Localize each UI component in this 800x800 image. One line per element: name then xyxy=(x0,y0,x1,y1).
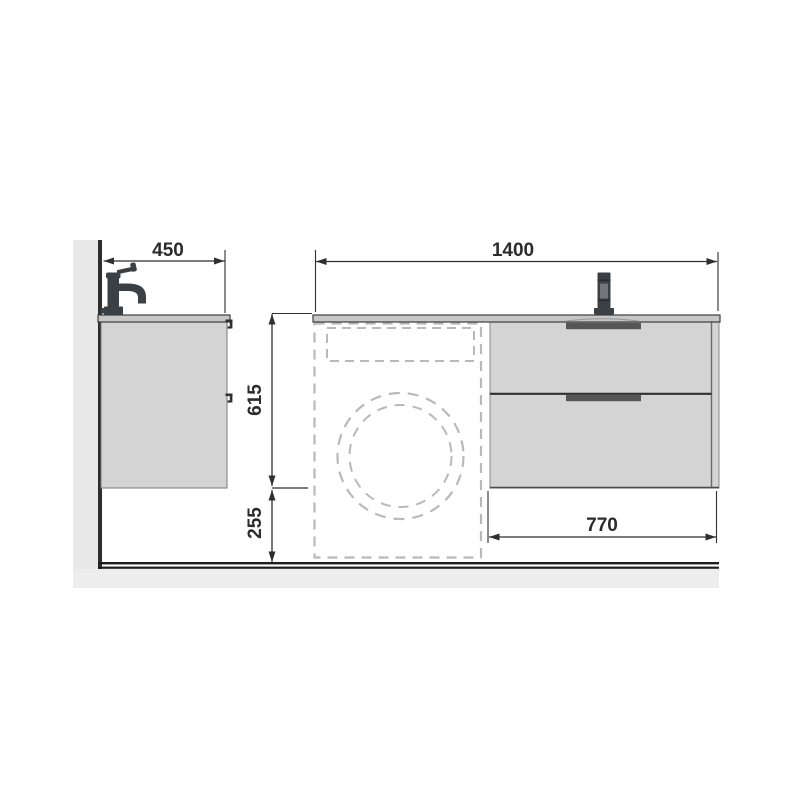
dimension-label-drawer-unit-width: 770 xyxy=(586,515,618,536)
wall-fill xyxy=(73,240,98,570)
dimension-depth: 450 xyxy=(104,240,226,313)
drawer-handle-bottom xyxy=(566,395,641,401)
floor-line-top xyxy=(98,562,719,564)
floor xyxy=(73,562,719,588)
arrowhead-up xyxy=(269,490,276,501)
side-view-countertop xyxy=(98,315,230,322)
washing-machine-space xyxy=(315,324,482,558)
arrowhead-down xyxy=(269,552,276,563)
dimension-label-depth: 450 xyxy=(152,240,184,261)
dimension-label-clearance-height: 255 xyxy=(245,507,266,539)
side-view-unit xyxy=(98,262,233,488)
washing-machine-door-outer-circle xyxy=(338,393,464,519)
dimension-label-unit-height: 615 xyxy=(245,384,266,416)
dimension-label-total-width: 1400 xyxy=(492,240,534,261)
arrowhead-up xyxy=(269,314,276,325)
floor-line-bottom xyxy=(98,567,719,569)
faucet-side-icon xyxy=(101,262,147,315)
arrowhead-down xyxy=(269,476,276,487)
front-view-cabinet xyxy=(490,322,719,488)
dimension-clearance-height: 255 xyxy=(245,488,308,562)
technical-drawing-canvas: 450 1400 615 255 xyxy=(0,0,800,800)
side-view-cabinet xyxy=(101,322,227,488)
arrowhead-left xyxy=(489,534,500,541)
washing-machine-panel-outline xyxy=(327,328,474,361)
front-view-unit xyxy=(313,273,720,489)
arrowhead-left xyxy=(104,258,115,265)
wall xyxy=(73,240,102,570)
vanity-technical-drawing: 450 1400 615 255 xyxy=(0,0,800,800)
floor-fill xyxy=(73,569,719,588)
arrowhead-right xyxy=(706,534,717,541)
dimension-unit-height: 615 xyxy=(245,314,312,487)
arrowhead-left xyxy=(316,258,327,265)
faucet-front-icon xyxy=(594,273,614,315)
arrowhead-right xyxy=(214,258,225,265)
drawer-handle-top xyxy=(566,323,641,329)
washing-machine-door-inner-circle xyxy=(350,405,452,507)
front-view-countertop xyxy=(313,315,720,322)
dimension-drawer-unit-width: 770 xyxy=(488,491,717,543)
arrowhead-right xyxy=(707,258,718,265)
dimension-total-width: 1400 xyxy=(316,240,719,312)
